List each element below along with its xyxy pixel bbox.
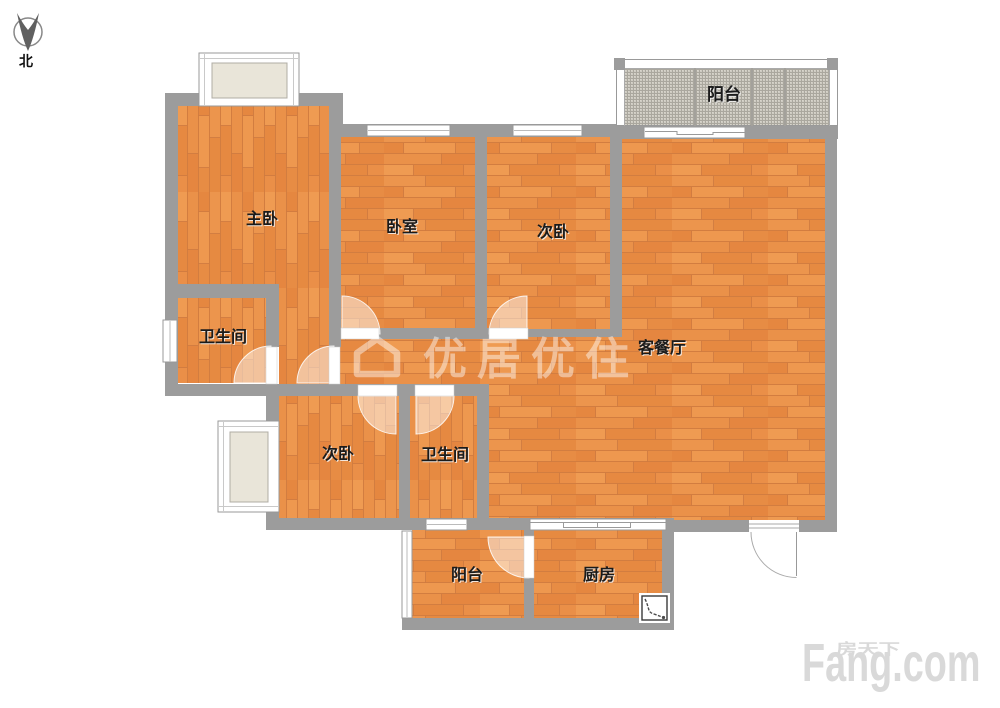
- svg-text:卫生间: 卫生间: [199, 327, 247, 346]
- svg-text:次卧: 次卧: [537, 222, 569, 241]
- svg-text:阳台: 阳台: [707, 84, 741, 104]
- svg-text:阳台: 阳台: [451, 565, 483, 584]
- svg-text:客餐厅: 客餐厅: [638, 338, 686, 357]
- svg-text:次卧: 次卧: [322, 444, 354, 463]
- svg-text:北: 北: [19, 53, 33, 69]
- svg-text:卧室: 卧室: [386, 217, 418, 236]
- svg-text:卫生间: 卫生间: [421, 445, 469, 464]
- svg-text:Fang.com: Fang.com: [802, 632, 980, 692]
- svg-text:优居优住: 优居优住: [423, 335, 639, 384]
- svg-text:厨房: 厨房: [583, 565, 615, 584]
- svg-text:主卧: 主卧: [246, 209, 278, 228]
